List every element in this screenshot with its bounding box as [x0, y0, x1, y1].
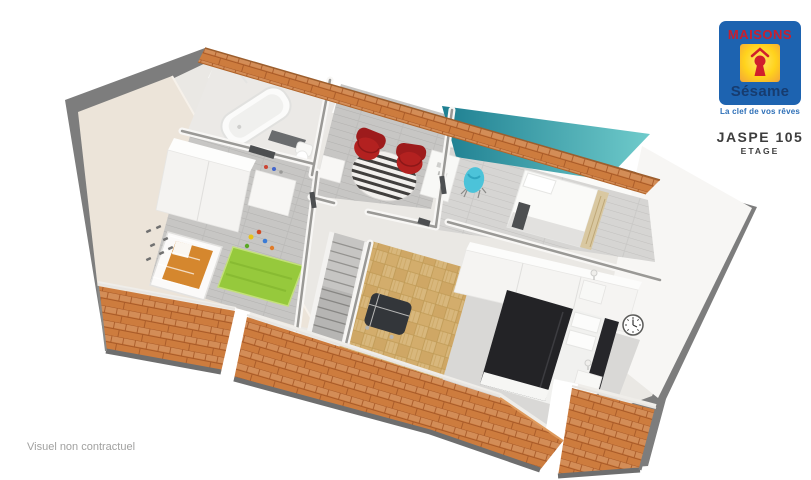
maisons-sesame-logo: MAISONS Sésame: [719, 21, 801, 105]
logo-tagline: La clef de vos rêves: [697, 107, 811, 116]
plan-level: ETAGE: [697, 146, 811, 156]
disclaimer-text: Visuel non contractuel: [27, 441, 135, 453]
keyhole-icon: [740, 44, 780, 82]
floorplan-3d-render: [0, 0, 811, 480]
logo-brand-bottom: Sésame: [731, 84, 790, 99]
logo-brand-top: MAISONS: [728, 28, 792, 41]
wall-clock-icon: [623, 315, 643, 335]
floorplan-page: MAISONS Sésame La clef de vos rêves JASP…: [0, 0, 811, 480]
plan-name: JASPE 105: [697, 129, 811, 145]
